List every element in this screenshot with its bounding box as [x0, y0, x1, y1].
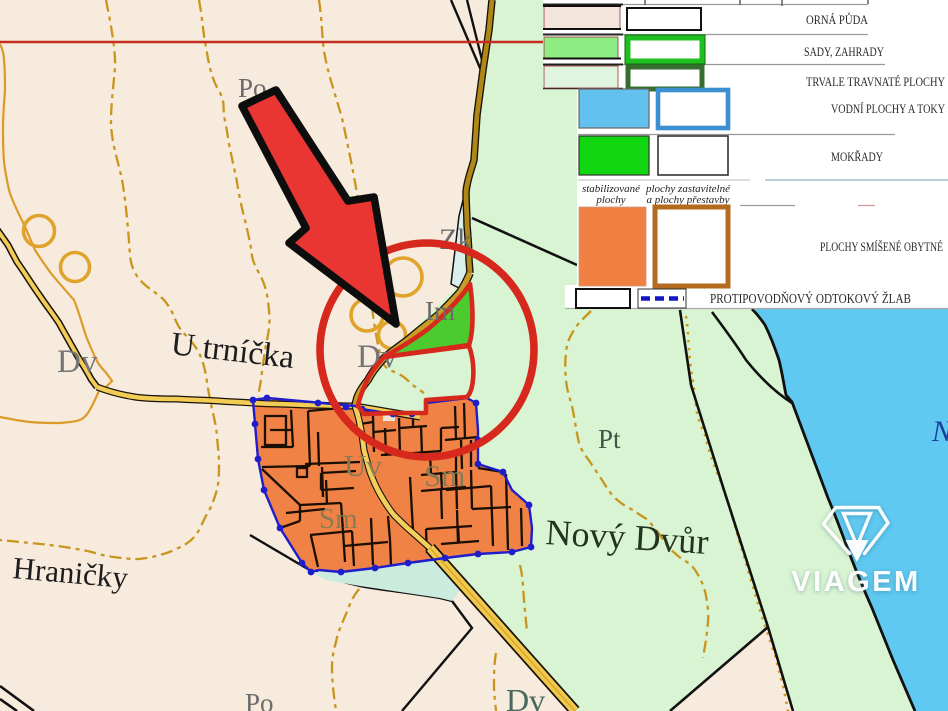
svg-text:PLOCHY SMÍŠENÉ OBYTNÉ: PLOCHY SMÍŠENÉ OBYTNÉ	[820, 240, 943, 254]
svg-text:SADY, ZAHRADY: SADY, ZAHRADY	[804, 45, 884, 59]
svg-text:Sm: Sm	[424, 458, 465, 493]
svg-text:PROTIPOVODŇOVÝ ODTOKOVÝ ŽLAB: PROTIPOVODŇOVÝ ODTOKOVÝ ŽLAB	[710, 291, 911, 306]
svg-text:a plochy přestavby: a plochy přestavby	[646, 194, 729, 206]
svg-text:Im: Im	[425, 296, 455, 326]
svg-text:TRVALE TRAVNATÉ PLOCHY: TRVALE TRAVNATÉ PLOCHY	[806, 75, 945, 89]
svg-text:plochy: plochy	[595, 194, 625, 206]
svg-text:Po: Po	[245, 688, 274, 711]
svg-text:Pt: Pt	[598, 424, 621, 454]
svg-text:VIAGEM: VIAGEM	[791, 566, 920, 598]
svg-text:Dv: Dv	[57, 344, 98, 380]
svg-text:Dv: Dv	[506, 682, 545, 711]
svg-text:Sm: Sm	[319, 503, 358, 535]
svg-text:Uv: Uv	[344, 448, 382, 483]
svg-text:N: N	[931, 415, 948, 448]
svg-text:ORNÁ PŮDA: ORNÁ PŮDA	[806, 12, 868, 27]
svg-text:VODNÍ PLOCHY A TOKY: VODNÍ PLOCHY A TOKY	[831, 102, 945, 116]
svg-text:MOKŘADY: MOKŘADY	[831, 150, 883, 164]
